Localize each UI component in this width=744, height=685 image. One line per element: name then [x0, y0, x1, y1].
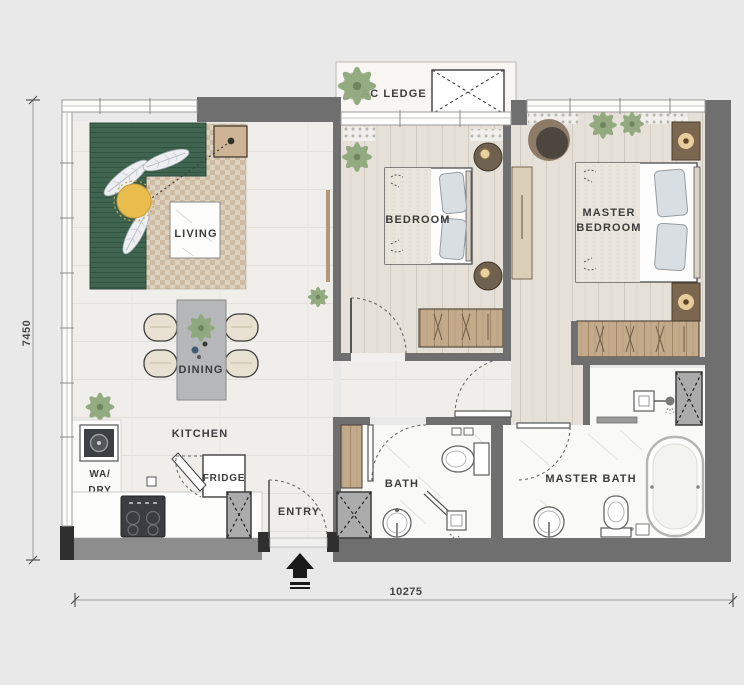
washer-knob-icon — [97, 441, 101, 445]
floor-hallway — [341, 361, 511, 417]
wall-bottom-right — [333, 538, 731, 562]
wall-top-living — [197, 97, 341, 122]
dining-label: DINING — [178, 364, 223, 376]
hall-cabinet — [341, 425, 362, 488]
floor-bath — [362, 425, 491, 538]
bidet-box — [636, 524, 649, 535]
pillow — [439, 172, 467, 214]
table-lamp-icon — [480, 149, 490, 159]
headboard — [466, 171, 471, 261]
pillow — [654, 169, 688, 217]
plant-ledge — [338, 67, 376, 105]
table-decor — [203, 342, 208, 347]
master-headboard — [694, 167, 700, 278]
bedroom-label: BEDROOM — [385, 214, 450, 226]
table-lamp-icon — [683, 138, 689, 144]
wall-bedroom-right — [503, 124, 511, 361]
tub-faucet-icon — [696, 485, 700, 489]
table-lamp-icon — [683, 299, 689, 305]
shower-mixer — [634, 391, 654, 411]
plant-master — [589, 111, 617, 139]
floor-plan-canvas: AC LEDGE LIVING DINING KITCHEN — [0, 0, 744, 685]
wall-bedroom-bottom — [405, 353, 511, 361]
floor-plan: AC LEDGE LIVING DINING KITCHEN — [0, 0, 744, 685]
bathtub-basin — [653, 444, 697, 529]
corridor-door-leaf — [455, 411, 511, 417]
master-bath-door-leaf — [517, 423, 570, 428]
counter-detail — [147, 477, 156, 486]
kitchen-label: KITCHEN — [172, 428, 229, 440]
curtain-strip — [343, 127, 375, 141]
wall-master-wardrobe — [571, 357, 705, 365]
wall-corner-dark — [60, 526, 74, 560]
master-bedroom-label-2: BEDROOM — [576, 222, 641, 234]
wall-wardrobe-stub — [571, 321, 577, 357]
pouf — [117, 184, 151, 218]
lounge-chair-seat — [536, 127, 568, 159]
table-decor — [197, 355, 201, 359]
tub-faucet-icon — [650, 485, 654, 489]
wardrobe — [419, 309, 503, 347]
plant-bedroom — [342, 142, 372, 172]
curtain-strip — [470, 129, 503, 141]
shower-unit — [447, 511, 466, 530]
floor-corridor — [511, 361, 583, 425]
wall-bottom-left — [62, 538, 262, 560]
door-threshold — [351, 353, 405, 361]
shower-bench — [597, 417, 637, 423]
master-bath-label: MASTER BATH — [545, 473, 636, 485]
table-decor-bowl — [192, 347, 199, 354]
wall-right — [705, 100, 731, 562]
bath-label: BATH — [385, 478, 419, 490]
wall-bath-masterbath — [491, 417, 503, 538]
toilet-tank — [474, 443, 489, 475]
wall-living-bedroom — [333, 121, 341, 361]
fridge-label: FRIDGE — [203, 473, 246, 484]
plant-master — [620, 112, 644, 136]
faucet-icon — [395, 508, 399, 512]
ac-ledge: AC LEDGE — [336, 62, 516, 114]
flush-plate — [464, 428, 473, 435]
plant-dining-table — [187, 314, 215, 342]
plant-living — [308, 287, 328, 307]
wall-master-junction — [511, 100, 527, 125]
toilet — [442, 446, 474, 472]
wall-corridor-masterbath — [583, 365, 590, 425]
wadry-label-1: WA/ — [89, 469, 110, 480]
sliding-door-panel — [326, 190, 330, 282]
entry-label: ENTRY — [278, 506, 320, 518]
floor-lamp-icon — [228, 138, 235, 145]
master-wardrobe — [577, 321, 699, 357]
pillow — [654, 223, 687, 271]
living-label: LIVING — [174, 228, 217, 240]
shower-head-icon — [666, 397, 675, 406]
master-bedroom-label-1: MASTER — [582, 207, 635, 219]
table-lamp-icon — [480, 268, 490, 278]
flush-plate — [452, 428, 461, 435]
wall-bath-top — [341, 417, 370, 425]
plant-kitchen — [86, 393, 115, 422]
wall-bedroom-bottom — [341, 353, 351, 361]
entry-sill — [270, 538, 327, 547]
dimension-horizontal-value: 10275 — [389, 586, 422, 598]
dimension-vertical-value: 7450 — [21, 320, 33, 346]
